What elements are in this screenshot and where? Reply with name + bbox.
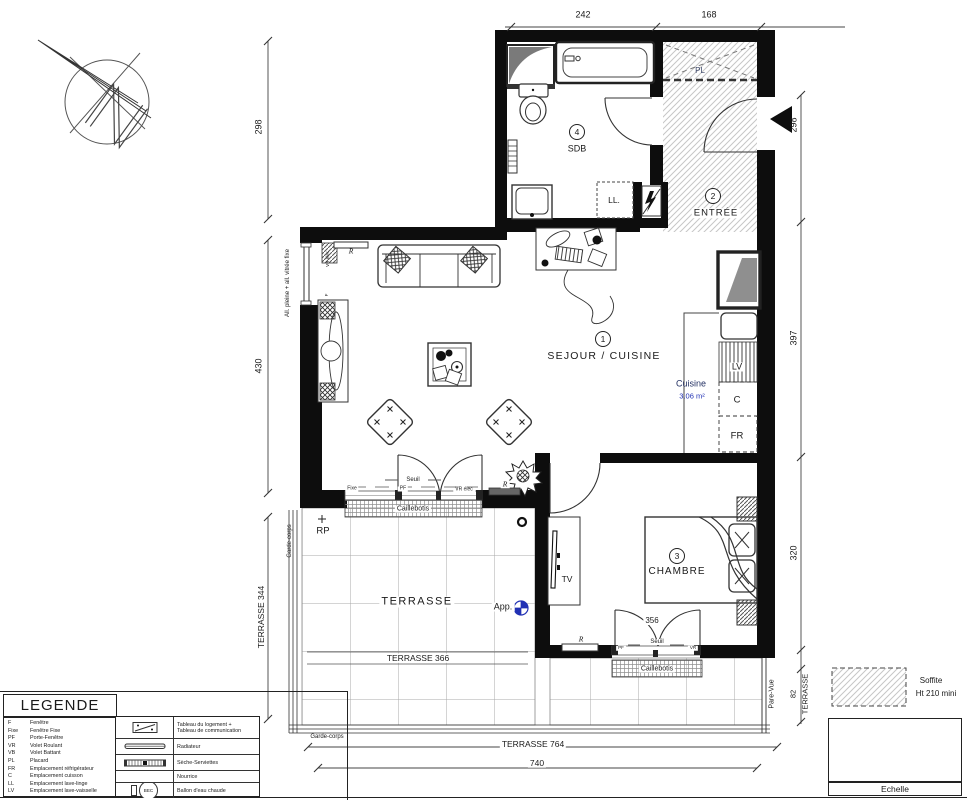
radiator-icon [116,738,173,754]
legend-row: FFenêtre [8,720,116,728]
tv-tag: TV [562,575,573,584]
room-number-chambre: 3 [669,548,685,564]
cuisine-label: Cuisine [676,380,706,389]
room-label-sejour: SEJOUR / CUISINE [547,351,660,362]
dim-right-lower: 320 [790,545,799,560]
bec-icon: BEC [116,782,173,798]
room-label-entree: ENTRÉE [692,208,741,218]
cuisson-tag: C [734,395,741,405]
placard-tag: PL [695,67,705,75]
dim-right-mid: 397 [790,330,799,345]
lave-linge-tag: LL. [608,196,620,205]
sejour-window [300,243,337,305]
cuisine-area: 3.06 m² [679,392,704,400]
legend-row: FREmplacement réfrigérateur [8,766,116,774]
wall-light-icon [514,601,528,615]
window-note: All. pleine + all. vitrée fixe [285,249,291,317]
refrigerateur-tag: FR [731,431,744,441]
legend-row: LVEmplacement lave-vaisselle [8,788,116,796]
dim-right-upper: 298 [790,117,799,132]
work-desk [536,228,616,324]
radiator-bay [489,488,520,495]
bay-seuil-label: Seuil [404,477,421,483]
dim-left-mid: 430 [255,358,264,373]
legend-row: PFPorte-Fenêtre [8,735,116,743]
dim-terrasse-764: TERRASSE 764 [500,740,566,749]
legend-abbrev-table: FFenêtre FixeFenêtre Fixe PFPorte-Fenêtr… [3,717,117,797]
chambre-door [550,463,600,513]
window-vr-note: VR élec [326,251,331,267]
toilet [519,84,548,124]
dim-right-terrace-h: 82 [789,690,797,698]
caillebotis-label-chambre: Caillebotis [639,666,675,673]
coffee-table [428,343,471,386]
sdb-door [605,98,652,145]
radiator-tag-chambre: R [579,635,584,643]
legend-row: VRVolet Roulant [8,743,116,751]
legend-title: LEGENDE [3,694,117,717]
dim-left-terrace: TERRASSE 344 [257,586,266,648]
dim-right-terrace-label: TERRASSE [801,674,809,714]
bay-vr-label: VR élec [453,488,475,493]
tv-unit [548,517,580,605]
kitchen-sink [721,313,757,339]
rp-tag: RP [314,526,331,536]
soffite-swatch [832,668,906,706]
pare-vue-label: Pare-Vue [769,679,776,708]
north-arrow-icon [38,40,151,148]
seche-serviettes-icon [116,754,173,770]
radiator-tag-window: R [349,247,354,255]
terrasse-label: TERRASSE [379,597,454,608]
legend-row: FixeFenêtre Fixe [8,728,116,736]
chambre-vr-label: VR [688,646,698,651]
room-number-sejour: 1 [595,331,611,347]
legend-row: PLPlacard [8,758,116,766]
drain-icon [518,518,526,526]
pare-vue-screen [762,658,766,733]
legend-symbol-label: Tableau du logement +Tableau de communic… [173,717,259,738]
console-desk [318,300,348,402]
legend-symbol-label: Sèche-Serviettes [173,754,259,770]
room-number-sdb: 4 [569,124,585,140]
garde-corps-bottom-label: Garde-corps [310,734,343,740]
vr-box-lower [737,600,757,625]
nourrice-symbol [116,770,173,782]
soffite-line2: Ht 210 mini [916,690,956,698]
dim-top-left: 242 [575,11,590,20]
titleblock-divider-v [347,691,348,800]
vr-box-upper [737,497,757,521]
scale-box [828,718,962,782]
echelle-label: Echelle [828,782,962,796]
legend-row: VBVolet Battant [8,750,116,758]
dim-terrasse-366: TERRASSE 366 [385,654,451,663]
titleblock-divider-h [0,691,347,692]
soffite-line1: Soffite [920,677,943,685]
bay-pf-label: PF [398,487,408,492]
legend-symbol-label: Nourrice [173,770,259,782]
floor-plan: 242 168 298 430 TERRASSE 344 298 397 320… [0,0,967,800]
legend-row: CEmplacement cuisson [8,773,116,781]
chambre-pf-label: PF [616,646,626,651]
washbasin [512,185,552,219]
radiator-chambre [562,644,598,651]
lave-vaisselle-tag: LV [730,363,744,372]
room-label-chambre: CHAMBRE [648,567,705,577]
pouf-right [485,398,533,446]
towel-radiator [508,140,517,173]
room-label-sdb: SDB [568,145,587,154]
electrical-panel [642,186,661,216]
tableau-icon [116,717,173,738]
shower [507,45,555,89]
sofa [378,245,500,287]
bed [645,517,757,603]
legend-symbol-label: Ballon d'eau chaude [173,782,259,798]
legend-row: LLEmplacement lave-linge [8,781,116,789]
plan-linework [0,0,967,800]
radiator-tag-bay: R [501,480,510,488]
legend-symbol-label: Radiateur [173,738,259,754]
kitchen-zone [684,252,760,453]
bay-fixe-label: Fixe [345,487,358,492]
legend-symbols-table: Tableau du logement +Tableau de communic… [115,716,260,797]
dim-740: 740 [528,759,546,768]
bathtub [556,42,654,83]
applique-tag: App. [492,603,515,612]
caillebotis-label-sejour: Caillebotis [395,506,431,513]
dim-top-right: 168 [701,11,716,20]
chambre-seuil-label: Seuil [648,639,665,645]
dim-left-upper: 298 [255,119,264,134]
pouf-left [366,398,414,446]
window-f-note: F [325,294,330,297]
dim-chambre-door: 356 [643,617,660,625]
room-number-entree: 2 [705,188,721,204]
garde-corps-left-label: Garde-corps [287,524,293,557]
